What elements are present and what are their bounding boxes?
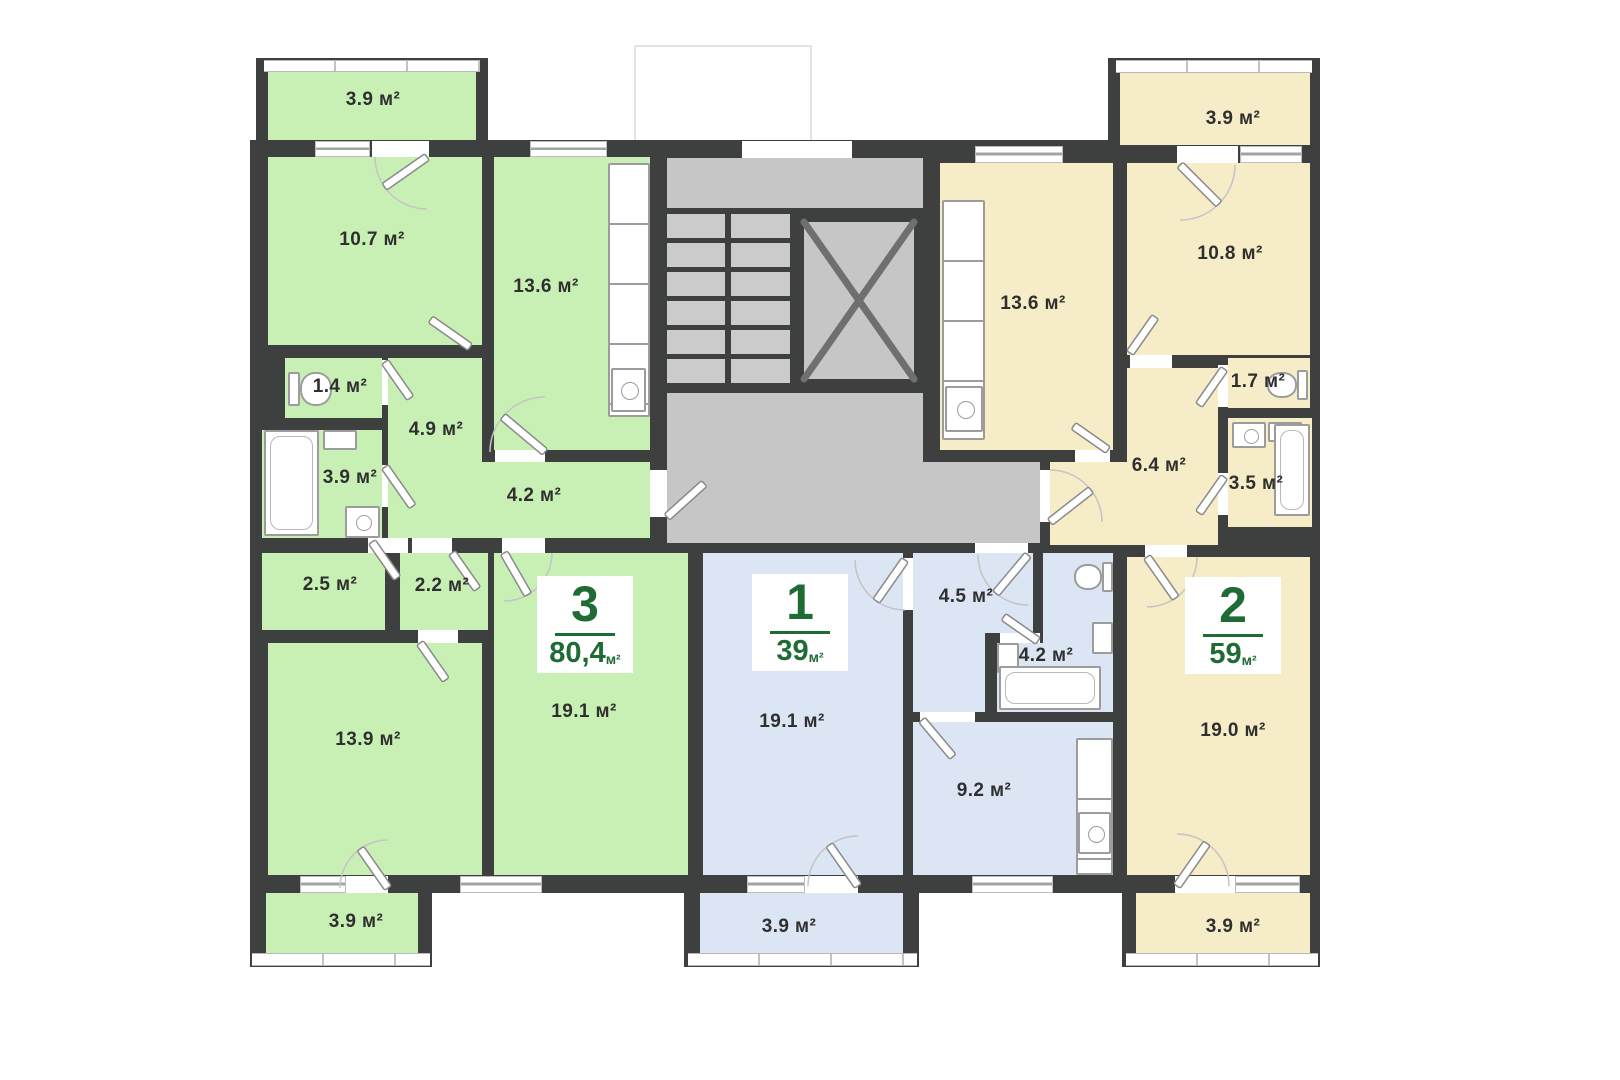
sink	[323, 430, 357, 450]
washing-machine	[1232, 422, 1266, 448]
apartment-badge-2-room[interactable]: 2 59м²	[1185, 577, 1281, 674]
door-opening	[1177, 146, 1238, 163]
window	[1235, 876, 1300, 893]
door-opening	[1218, 365, 1228, 407]
sink	[1092, 622, 1113, 654]
label-yellow-hall: 6.4 м²	[1132, 455, 1186, 477]
door-opening	[1130, 355, 1172, 368]
apartment-total-area: 39м²	[776, 637, 823, 666]
door-opening	[495, 450, 545, 462]
kitchen-sink	[1078, 812, 1111, 854]
floor-plan: 3.9 м² 10.7 м² 13.6 м² 1.4 м² 4.9 м² 3.9…	[0, 0, 1620, 1080]
room-yellow-hall-entry	[1050, 462, 1127, 545]
label-blue-kitchen: 9.2 м²	[957, 780, 1011, 802]
toilet-tank	[1297, 370, 1308, 400]
apartment-badge-3-room[interactable]: 3 80,4м²	[537, 576, 633, 673]
door-opening	[1000, 633, 1040, 643]
label-green-corridor: 4.2 м²	[507, 485, 561, 507]
stair-landing	[667, 158, 923, 208]
label-green-wc: 1.4 м²	[313, 376, 367, 398]
label-green-hall: 4.9 м²	[409, 419, 463, 441]
kitchen-sink	[945, 386, 983, 432]
door-opening	[502, 538, 545, 553]
window	[315, 141, 370, 157]
door-opening	[975, 543, 1028, 553]
toilet-tank	[288, 372, 300, 406]
common-corridor-extension	[923, 462, 1040, 543]
room-green-bedroom	[268, 157, 482, 345]
common-corridor	[667, 393, 923, 543]
balcony-glazing	[688, 953, 917, 966]
balcony-glazing	[264, 60, 480, 72]
toilet	[1074, 564, 1102, 590]
label-green-storage-1: 2.5 м²	[303, 574, 357, 596]
label-yellow-kitchen: 13.6 м²	[1000, 293, 1065, 315]
badge-divider	[770, 631, 830, 634]
door-opening	[382, 360, 388, 405]
bathtub	[1274, 424, 1310, 516]
window	[972, 876, 1053, 893]
door-opening	[372, 141, 429, 157]
apartment-badge-1-room[interactable]: 1 39м²	[752, 574, 848, 671]
door-opening	[382, 465, 388, 507]
badge-divider	[555, 633, 615, 636]
room-blue-hall-lower	[913, 633, 985, 712]
label-blue-bathroom: 4.2 м²	[1019, 645, 1073, 667]
balcony-glazing	[252, 953, 430, 966]
apartment-number: 2	[1219, 582, 1247, 630]
label-green-living: 19.1 м²	[551, 701, 616, 723]
label-green-kitchen: 13.6 м²	[513, 276, 578, 298]
label-yellow-balcony-bottom: 3.9 м²	[1206, 916, 1260, 938]
window	[747, 876, 805, 893]
label-blue-living: 19.1 м²	[759, 711, 824, 733]
door-opening	[346, 876, 388, 893]
window	[460, 876, 542, 893]
door-opening	[418, 630, 458, 643]
label-green-bedroom-2: 13.9 м²	[335, 729, 400, 751]
door-opening	[1075, 450, 1110, 462]
apartment-number: 3	[571, 581, 599, 629]
bathtub	[264, 430, 319, 536]
label-blue-hall: 4.5 м²	[939, 586, 993, 608]
label-yellow-wc: 1.7 м²	[1231, 371, 1285, 393]
stair-flight-left	[667, 214, 725, 388]
bathtub	[999, 666, 1101, 710]
apartment-number: 1	[786, 579, 814, 627]
label-green-balcony-bottom: 3.9 м²	[329, 911, 383, 933]
room-green-hall	[388, 358, 482, 462]
stairwell-entrance-opening	[742, 141, 852, 158]
balcony-glazing	[1116, 60, 1312, 73]
label-green-bathroom: 3.9 м²	[323, 467, 377, 489]
label-yellow-living: 19.0 м²	[1200, 720, 1265, 742]
kitchen-sink	[611, 368, 646, 412]
balcony-glazing	[1126, 953, 1318, 966]
label-green-storage-2: 2.2 м²	[415, 575, 469, 597]
apartment-total-area: 80,4м²	[549, 639, 620, 668]
kitchen-counter	[1076, 738, 1113, 875]
stair-flight-right	[731, 214, 790, 388]
door-opening	[903, 558, 913, 610]
door-opening	[1175, 876, 1235, 893]
window	[300, 876, 346, 893]
window	[530, 141, 607, 157]
door-opening	[805, 876, 858, 893]
door-opening	[412, 538, 452, 553]
door-opening	[368, 538, 408, 553]
door-opening	[650, 470, 667, 517]
room-green-bedroom-2	[268, 643, 482, 875]
toilet-tank	[1102, 562, 1113, 592]
door-opening	[920, 712, 975, 722]
label-yellow-bathroom: 3.5 м²	[1229, 473, 1283, 495]
label-green-bedroom: 10.7 м²	[339, 229, 404, 251]
door-opening	[1145, 545, 1187, 557]
label-blue-balcony: 3.9 м²	[762, 916, 816, 938]
door-opening	[1218, 473, 1228, 515]
washing-machine	[345, 506, 380, 538]
door-opening	[1040, 470, 1050, 522]
elevator-shaft	[795, 213, 923, 388]
window	[975, 146, 1063, 163]
entrance-porch	[634, 45, 812, 143]
label-yellow-bedroom: 10.8 м²	[1197, 243, 1262, 265]
label-yellow-balcony-top: 3.9 м²	[1206, 108, 1260, 130]
label-green-balcony-top: 3.9 м²	[346, 89, 400, 111]
badge-divider	[1203, 634, 1263, 637]
apartment-total-area: 59м²	[1209, 640, 1256, 669]
window	[1240, 146, 1302, 163]
